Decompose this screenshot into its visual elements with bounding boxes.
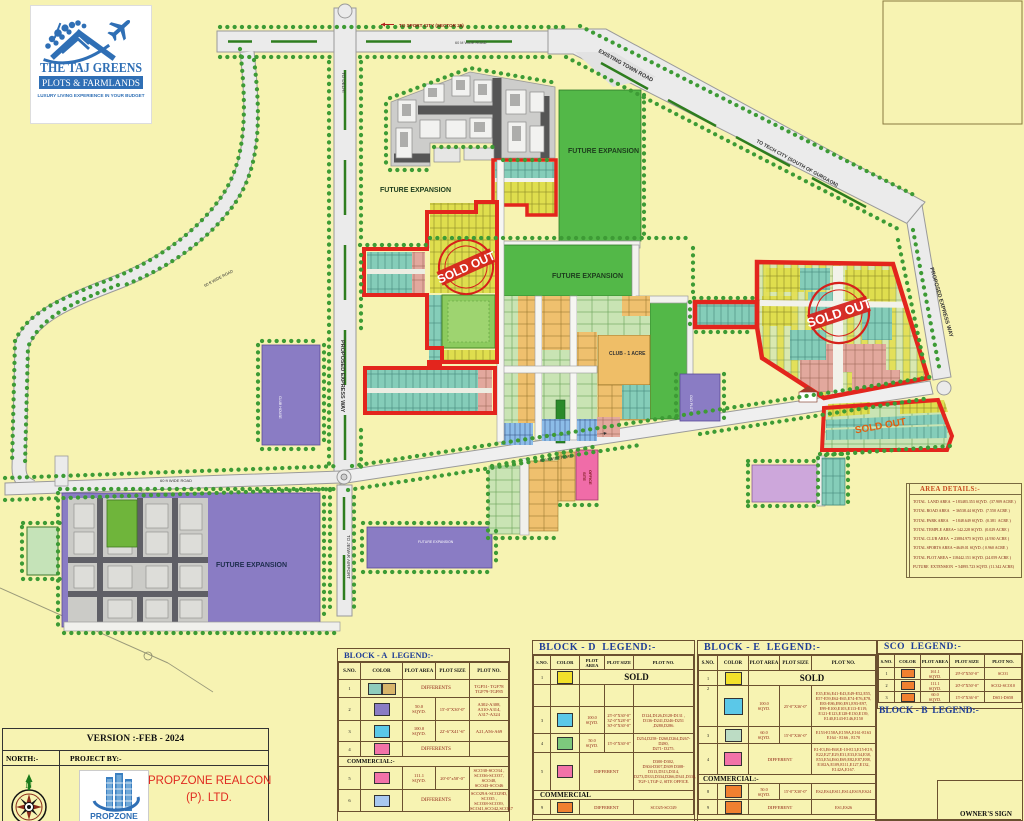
svg-text:OFFICE: OFFICE xyxy=(588,470,593,485)
svg-text:60 ft WIDE ROAD: 60 ft WIDE ROAD xyxy=(203,268,234,287)
svg-text:N: N xyxy=(26,780,33,790)
svg-text:OLD PLOT: OLD PLOT xyxy=(689,395,693,411)
svg-text:FUTURE EXPANSION: FUTURE EXPANSION xyxy=(418,540,454,544)
svg-text:CLUB HOUSE: CLUB HOUSE xyxy=(278,396,282,419)
svg-text:PROPOSED EXPRESS WAY: PROPOSED EXPRESS WAY xyxy=(339,340,345,413)
svg-text:TO DELHI: TO DELHI xyxy=(341,72,346,93)
svg-text:THE TAJ GREENS: THE TAJ GREENS xyxy=(40,60,142,75)
svg-text:TO SPORT CITY (SECTOR 25): TO SPORT CITY (SECTOR 25) xyxy=(399,23,464,28)
svg-text:CLUB - 1 ACRE: CLUB - 1 ACRE xyxy=(609,351,646,357)
svg-text:PLOTS & FARMLANDS: PLOTS & FARMLANDS xyxy=(42,79,140,89)
svg-text:TO JEWAR AIRPORT: TO JEWAR AIRPORT xyxy=(346,535,351,579)
svg-text:60 M WIDE ROAD: 60 M WIDE ROAD xyxy=(455,41,487,45)
svg-text:FUTURE EXPANSION: FUTURE EXPANSION xyxy=(552,273,623,280)
svg-text:PROPZONE: PROPZONE xyxy=(90,811,138,821)
svg-text:SITE: SITE xyxy=(582,472,587,481)
svg-text:LUXURY LIVING EXPERIENCE IN YO: LUXURY LIVING EXPERIENCE IN YOUR BUDGET xyxy=(37,93,144,98)
svg-text:FUTURE EXPANSION: FUTURE EXPANSION xyxy=(216,562,287,569)
svg-text:FUTURE EXPANSION: FUTURE EXPANSION xyxy=(380,187,451,194)
svg-text:FUTURE EXPANSION: FUTURE EXPANSION xyxy=(568,148,639,155)
svg-text:←: ← xyxy=(140,488,145,494)
svg-text:60 ft WIDE ROAD: 60 ft WIDE ROAD xyxy=(160,478,192,483)
